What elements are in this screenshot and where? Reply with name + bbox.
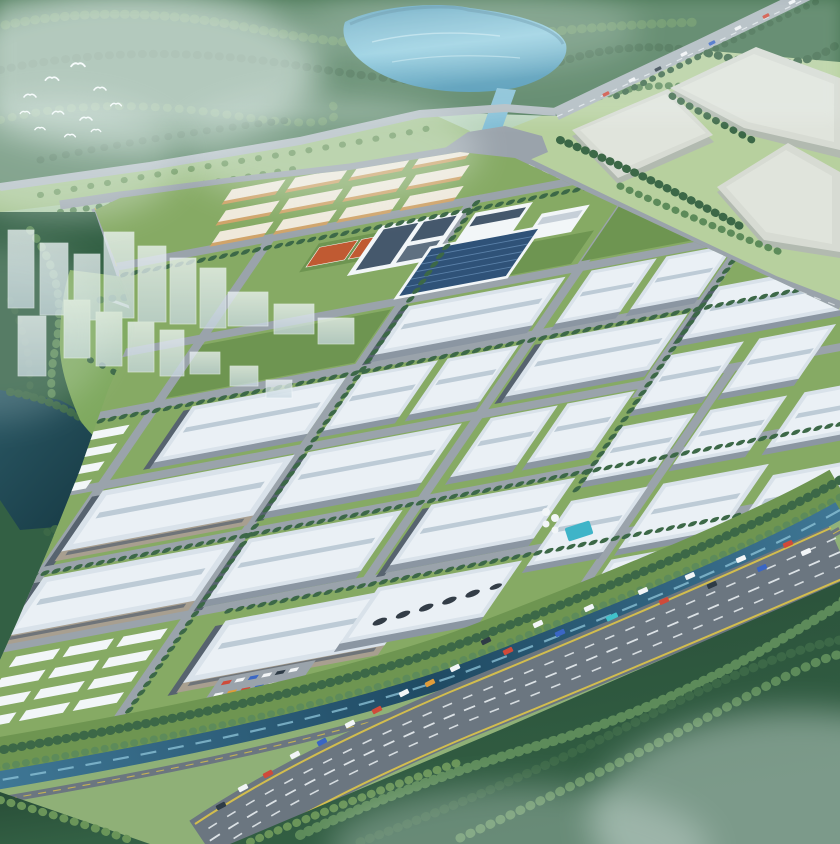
rendered-image-stage: [0, 0, 840, 844]
aerial-industrial-park-render: [0, 0, 840, 844]
